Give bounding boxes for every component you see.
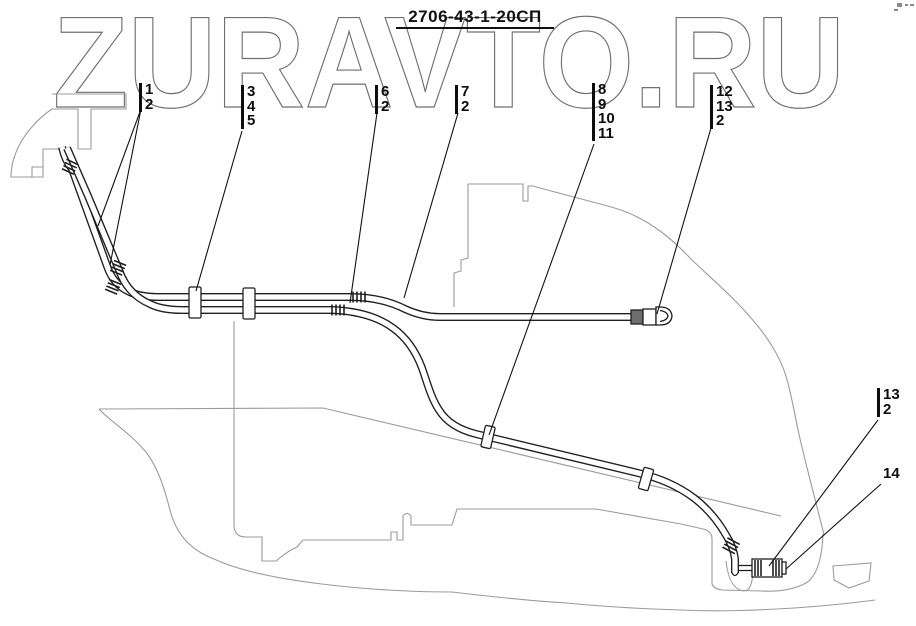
- leader-8-9-10-11: [489, 144, 594, 435]
- part-number: 14: [883, 467, 900, 482]
- callout-bar: [455, 85, 458, 114]
- callout-14: 14: [883, 467, 900, 482]
- callout-bar: [241, 85, 244, 129]
- callout-bar: [592, 83, 595, 141]
- leader-14: [786, 484, 881, 569]
- part-number: 2: [381, 100, 389, 115]
- part-number: 2: [461, 100, 469, 115]
- part-number: 2: [716, 114, 733, 129]
- callout-1-2: 1 2: [139, 83, 153, 112]
- callout-8-9-10-11: 8 9 10 11: [592, 83, 615, 141]
- connector-body: [643, 309, 656, 325]
- machine-bracket-notch: [32, 167, 43, 177]
- machine-frame-top-edge: [99, 408, 781, 516]
- part-number: 2: [145, 98, 153, 113]
- pipe-end-connector: [631, 307, 672, 325]
- callout-3-4-5: 3 4 5: [241, 85, 255, 129]
- callout-bar: [375, 85, 378, 114]
- crimp-bands: [62, 159, 740, 553]
- leader-3-4-5: [196, 131, 242, 291]
- machine-tower-left-steps: [454, 184, 468, 307]
- leader-13-2: [769, 420, 878, 566]
- clamp-bracket-2: [243, 288, 255, 319]
- callout-7-2: 7 2: [455, 85, 469, 114]
- part-number: 5: [247, 114, 255, 129]
- part-number: 2: [883, 403, 900, 418]
- leader-6-2: [350, 113, 377, 303]
- part-number: 11: [598, 127, 615, 142]
- hose-upper: [62, 147, 631, 317]
- callout-bar: [139, 83, 142, 112]
- connector-collar: [631, 310, 643, 324]
- parts-diagram-page: ZURAVTO.RU: [0, 0, 916, 626]
- fitting-14: [739, 559, 786, 577]
- leader-7-2: [404, 113, 458, 298]
- drawing-number: 2706-43-1-20СП: [396, 6, 554, 29]
- clamp-bracket-1: [189, 287, 201, 318]
- callout-bar: [710, 85, 713, 129]
- corner-mark: [894, 3, 914, 11]
- clamp-bracket-3: [481, 425, 496, 449]
- leader-lines: [98, 109, 881, 569]
- machine-engine-tower: [468, 184, 533, 201]
- callout-bar: [877, 388, 880, 417]
- fitting-14-body: [752, 559, 782, 577]
- hose-lower: [67, 148, 739, 576]
- fitting-14-end-cap: [782, 562, 786, 574]
- callout-12-13-2: 12 13 2: [710, 85, 733, 129]
- callout-13-2: 13 2: [877, 388, 900, 417]
- callout-6-2: 6 2: [375, 85, 389, 114]
- leader-12-13-2: [657, 128, 711, 314]
- machine-island: [833, 563, 871, 588]
